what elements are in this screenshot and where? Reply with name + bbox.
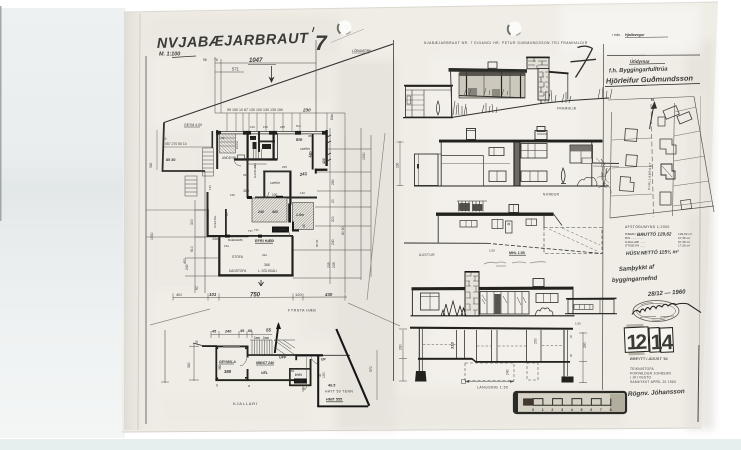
svg-text:20: 20 (569, 334, 573, 338)
svg-text:80 60: 80 60 (315, 239, 319, 247)
svg-text:1530: 1530 (150, 232, 154, 240)
svg-text:0: 0 (532, 408, 534, 412)
svg-text:N: N (651, 97, 654, 102)
svg-text:ÞVH.: ÞVH. (295, 373, 303, 377)
svg-text:GEYM 4.00: GEYM 4.00 (184, 123, 202, 127)
svg-text:TPi: TPi (254, 228, 259, 232)
svg-text:46: 46 (302, 387, 306, 391)
svg-text:MHL 1:50: MHL 1:50 (509, 251, 525, 255)
svg-text:svefnh: svefnh (300, 147, 310, 151)
svg-text:90: 90 (195, 286, 199, 290)
svg-text:KYNT: KYNT (296, 380, 305, 384)
svg-text:Hjallavegur: Hjallavegur (625, 33, 645, 37)
svg-text:401: 401 (176, 293, 182, 297)
svg-text:310: 310 (450, 342, 455, 349)
svg-text:M. 1:100: M. 1:100 (159, 52, 180, 58)
svg-text:5: 5 (581, 408, 583, 412)
svg-text:HATT 50 TENN: HATT 50 TENN (325, 390, 353, 394)
svg-text:SVEFNH.: SVEFNH. (213, 215, 217, 228)
svg-text:a: a (248, 384, 250, 388)
svg-text:L. SÓLSKÁLI: L. SÓLSKÁLI (258, 268, 277, 273)
svg-text:160: 160 (250, 125, 255, 129)
svg-text:BAÐHERB.: BAÐHERB. (228, 238, 244, 242)
svg-text:LANGSNIÐ 1:50: LANGSNIÐ 1:50 (477, 386, 508, 390)
svg-text:1:50: 1:50 (575, 322, 581, 326)
svg-text:240: 240 (331, 239, 335, 245)
svg-text:VÉL: VÉL (261, 370, 268, 375)
svg-text:235: 235 (327, 262, 331, 268)
svg-text:1: 1 (542, 408, 544, 412)
svg-text:1047: 1047 (249, 58, 263, 64)
svg-text:SAMÞYKKT APRÍL 20 1963: SAMÞYKKT APRÍL 20 1963 (630, 380, 676, 384)
svg-text:96: 96 (203, 58, 207, 62)
svg-text:7: 7 (315, 32, 328, 55)
svg-text:12: 12 (626, 331, 647, 355)
svg-text:84a: 84a (325, 136, 329, 142)
svg-text:FRAMHLIÐ: FRAMHLIÐ (557, 107, 577, 111)
svg-text:120: 120 (253, 163, 257, 168)
svg-text:240: 240 (506, 369, 510, 375)
svg-text:NORÐUR: NORÐUR (543, 193, 560, 197)
svg-text:240: 240 (257, 210, 264, 214)
svg-text:420: 420 (322, 158, 326, 165)
svg-text:570: 570 (369, 366, 373, 372)
svg-text:360: 360 (218, 364, 222, 370)
svg-text:HNIT 555: HNIT 555 (326, 398, 342, 402)
svg-text:34a: 34a (212, 237, 218, 241)
svg-text:300: 300 (331, 216, 335, 222)
svg-text:360: 360 (272, 210, 278, 214)
svg-text:76: 76 (214, 58, 218, 62)
svg-text:í mkv.: í mkv. (612, 33, 621, 37)
svg-text:265: 265 (282, 165, 287, 169)
svg-text:1nn: 1nn (263, 336, 269, 340)
svg-text:20: 20 (331, 199, 335, 203)
svg-text:6: 6 (216, 384, 218, 388)
svg-text:ELDH.: ELDH. (235, 140, 239, 149)
svg-text:í JKI VESTO: í JKI VESTO (630, 376, 652, 380)
svg-text:Útidyrnar: Útidyrnar (630, 59, 650, 64)
svg-text:15a: 15a (224, 244, 229, 248)
svg-text:85 30: 85 30 (166, 158, 176, 162)
svg-text:360: 360 (243, 189, 249, 193)
svg-text:BREYTT í ÁGÚST '61: BREYTT í ÁGÚST '61 (630, 356, 668, 361)
svg-text:38a: 38a (308, 134, 313, 138)
svg-text:AFSTÖÐUMYND 1:2000: AFSTÖÐUMYND 1:2000 (625, 225, 670, 229)
svg-text:290: 290 (399, 344, 403, 350)
svg-text:STOFA: STOFA (232, 255, 244, 259)
svg-text:BRUTTÓ 129,62: BRUTTÓ 129,62 (637, 230, 672, 237)
svg-text:3: 3 (561, 408, 563, 412)
svg-text:057 270 50 10: 057 270 50 10 (165, 142, 187, 146)
svg-text:60: 60 (248, 329, 252, 333)
svg-text:1nn: 1nn (254, 336, 260, 340)
svg-text:45: 45 (212, 330, 216, 334)
svg-text:571: 571 (232, 67, 240, 72)
svg-text:140: 140 (300, 191, 305, 195)
svg-text:45: 45 (240, 329, 244, 333)
svg-text:1530: 1530 (362, 152, 366, 160)
svg-text:TPi: TPi (248, 229, 253, 233)
svg-text:34a: 34a (262, 253, 267, 257)
svg-text:7: 7 (600, 408, 602, 412)
svg-text:BAÐ: BAÐ (250, 137, 257, 141)
svg-text:45: 45 (195, 340, 199, 344)
svg-text:6: 6 (590, 408, 592, 412)
svg-text:368: 368 (264, 263, 270, 267)
svg-text:GEYMSLA: GEYMSLA (219, 360, 236, 364)
svg-text:120: 120 (295, 292, 302, 297)
svg-text:AUSTUR: AUSTUR (419, 253, 435, 257)
svg-text:135: 135 (208, 185, 212, 190)
svg-text:300: 300 (190, 219, 194, 225)
svg-text:LÓÐAMÖRK: LÓÐAMÖRK (352, 48, 372, 53)
svg-text:20: 20 (569, 353, 573, 357)
svg-text:4: 4 (661, 331, 674, 355)
svg-text:750: 750 (250, 292, 261, 298)
svg-text:290: 290 (583, 342, 587, 348)
svg-text:240: 240 (224, 330, 232, 334)
svg-text:46: 46 (302, 224, 306, 228)
svg-text:KJALLARI: KJALLARI (233, 401, 258, 406)
svg-text:EFRI HÆÐ: EFRI HÆÐ (255, 239, 274, 243)
svg-text:ÚTIGEYM ......: ÚTIGEYM ...... (625, 244, 645, 248)
svg-text:17,36 m²: 17,36 m² (678, 244, 690, 248)
svg-text:290: 290 (396, 162, 400, 168)
svg-text:10: 10 (163, 137, 167, 141)
svg-text:360: 360 (243, 173, 248, 177)
svg-text:265: 265 (280, 125, 285, 129)
svg-text:380: 380 (187, 362, 191, 368)
svg-text:NJABÆJARBRAUT NR. 7 EIGANDI: NJABÆJARBRAUT NR. 7 EIGANDI HR. PETUR GU… (424, 41, 588, 45)
svg-text:280: 280 (331, 179, 335, 185)
svg-text:40: 40 (221, 136, 225, 140)
svg-text:95 150 10 87 130 100 130 135: 95 150 10 87 130 100 130 135 150 (227, 108, 283, 112)
svg-text:450: 450 (183, 258, 187, 264)
svg-text:150: 150 (322, 372, 326, 378)
svg-text:svefnh: svefnh (270, 181, 280, 185)
svg-text:235: 235 (332, 262, 336, 268)
svg-text:150: 150 (263, 125, 268, 129)
svg-text:30: 30 (318, 373, 322, 377)
svg-text:80 60: 80 60 (341, 226, 345, 235)
svg-text:TEIKNISTOFA: TEIKNISTOFA (630, 367, 655, 371)
svg-text:55: 55 (266, 328, 271, 333)
svg-text:160: 160 (230, 193, 235, 197)
svg-text:4: 4 (571, 408, 573, 412)
svg-text:UP: UP (321, 358, 326, 362)
svg-text:UPP: UPP (279, 356, 287, 360)
svg-text:MIÐST 240: MIÐST 240 (256, 361, 274, 365)
svg-text:46.5: 46.5 (327, 384, 336, 388)
svg-text:FYRSTA HÆÐ: FYRSTA HÆÐ (288, 309, 317, 313)
svg-text:1:50: 1:50 (489, 249, 495, 253)
svg-text:26: 26 (225, 212, 229, 216)
svg-text:5nn: 5nn (296, 124, 301, 128)
svg-text:DAGSTOFA: DAGSTOFA (229, 269, 247, 273)
svg-text:2: 2 (551, 408, 553, 412)
svg-text:610: 610 (190, 246, 194, 252)
svg-text:101: 101 (209, 292, 217, 297)
svg-text:84a: 84a (330, 114, 334, 120)
svg-text:430: 430 (324, 292, 333, 297)
svg-text:5m: 5m (296, 137, 302, 142)
svg-text:250: 250 (534, 338, 538, 344)
svg-text:340: 340 (149, 162, 153, 168)
svg-text:1.3m: 1.3m (296, 213, 304, 217)
svg-text:230: 230 (302, 108, 311, 113)
svg-text:388: 388 (224, 369, 232, 374)
svg-text:240: 240 (185, 264, 189, 270)
svg-text:KLEFI: KLEFI (274, 228, 283, 232)
svg-text:8: 8 (610, 408, 612, 412)
